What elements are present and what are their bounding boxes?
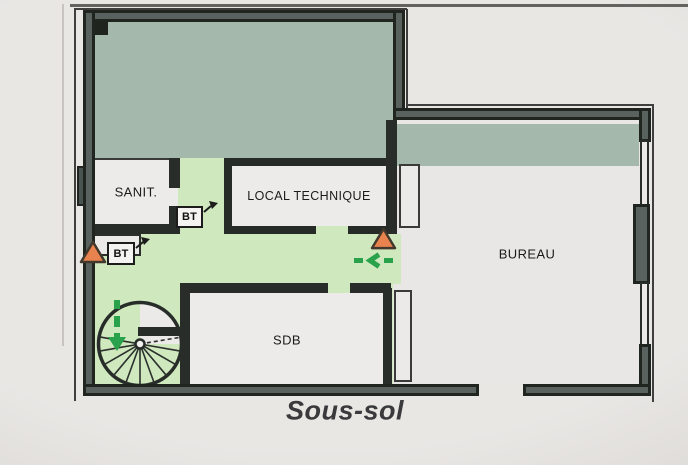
bureau-window-upper bbox=[640, 140, 649, 206]
upper-sage-zone-left bbox=[95, 22, 393, 158]
bt-arrow-icon-left bbox=[135, 235, 151, 250]
outer-wall-right-upper bbox=[639, 108, 651, 142]
outer-line-left bbox=[74, 8, 76, 401]
stair-hub bbox=[136, 340, 145, 349]
outer-wall-step bbox=[393, 108, 651, 120]
room-label-sdb: SDB bbox=[273, 333, 301, 348]
bt-callpoint-left: BT bbox=[107, 242, 135, 265]
evacuation-arrow-down-icon bbox=[106, 298, 128, 354]
outer-wall-bottom-right bbox=[523, 384, 651, 396]
alarm-triangle-icon-left bbox=[79, 239, 107, 265]
bureau-window-lower bbox=[640, 282, 649, 346]
floor-plan-sign: BT BT SANIT. LOCAL TECHNIQUE BUREAU SDB … bbox=[0, 0, 688, 465]
right-wall-pier bbox=[633, 204, 650, 284]
corridor-bureau-wall-upper bbox=[386, 120, 397, 234]
outer-line-mid bbox=[406, 9, 408, 109]
outer-wall-top bbox=[83, 10, 405, 22]
sdb-top-wall-left bbox=[180, 283, 328, 293]
outer-wall-bottom-left bbox=[83, 384, 479, 396]
sdb-bureau-wall bbox=[383, 288, 392, 384]
bt-label: BT bbox=[113, 248, 128, 260]
bt-arrow-icon-corridor bbox=[203, 199, 219, 214]
sanit-right-wall-upper bbox=[169, 158, 180, 188]
sign-left-edge bbox=[62, 4, 64, 346]
outer-wall-mid-vertical bbox=[393, 10, 405, 120]
bureau-door-leaf-lower bbox=[394, 290, 412, 382]
bt-label: BT bbox=[182, 211, 197, 223]
outer-wall-left bbox=[83, 10, 95, 396]
alarm-triangle-icon-right bbox=[370, 226, 397, 251]
local-technique-door-gap bbox=[316, 226, 348, 235]
sign-top-edge bbox=[70, 4, 688, 7]
evacuation-arrow-left-icon bbox=[347, 252, 394, 269]
sanit-bottom-wall bbox=[83, 224, 180, 234]
room-label-bureau: BUREAU bbox=[499, 247, 556, 262]
bureau-door-leaf-upper bbox=[399, 164, 420, 228]
stair-wall-stub bbox=[138, 327, 188, 336]
outer-line-step bbox=[406, 104, 654, 106]
sdb-top-wall-right bbox=[350, 283, 391, 293]
outer-line-right bbox=[652, 104, 654, 402]
corner-notch-topleft bbox=[95, 22, 108, 35]
room-label-sanit: SANIT. bbox=[115, 185, 158, 200]
upper-sage-zone-right bbox=[397, 124, 639, 166]
room-label-local-technique: LOCAL TECHNIQUE bbox=[247, 189, 370, 203]
floor-title: Sous-sol bbox=[286, 396, 404, 427]
bt-callpoint-corridor: BT bbox=[176, 206, 203, 228]
